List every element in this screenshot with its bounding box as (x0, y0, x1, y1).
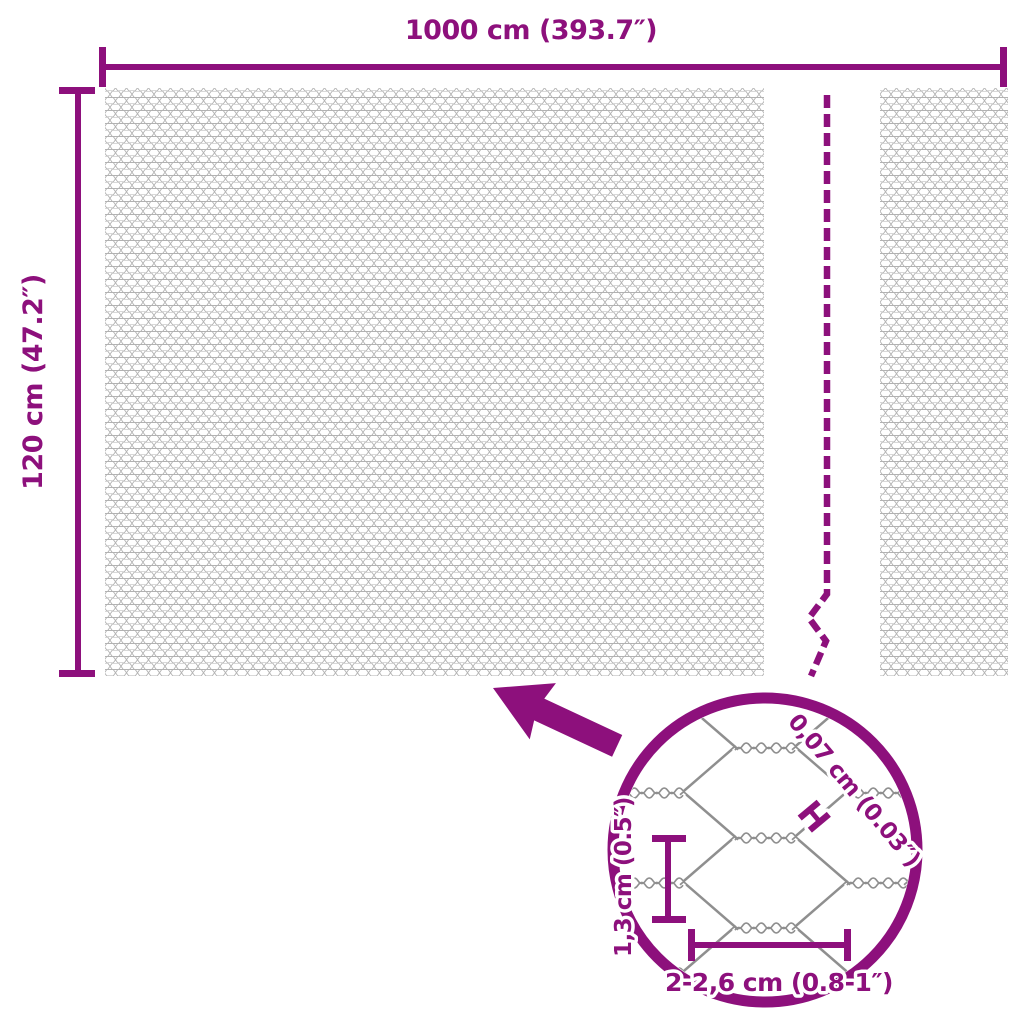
overall-height-label: 120 cm (47.2″) (18, 274, 49, 490)
overall-width-label: 1000 cm (393.7″) (405, 15, 657, 46)
break-line (809, 95, 827, 676)
detail-callout: H 0,07 cm (0.03″) 1,3 cm (0.5″) 2-2,6 cm… (456, 698, 1024, 1020)
zoom-arrow (480, 660, 630, 774)
mesh-width-label: 2-2,6 cm (0.8-1″) (665, 968, 893, 997)
product-dimension-diagram: 1000 cm (393.7″) 120 cm (47.2″) H 0,07 c… (0, 0, 1024, 1024)
detail-circle (613, 698, 917, 1002)
height-dimension-line (59, 90, 95, 674)
mesh-height-label: 1,3 cm (0.5″) (611, 797, 637, 957)
width-dimension-line (102, 47, 1004, 87)
mesh-panel-main (105, 88, 764, 676)
mesh-panel-right (880, 88, 1008, 676)
